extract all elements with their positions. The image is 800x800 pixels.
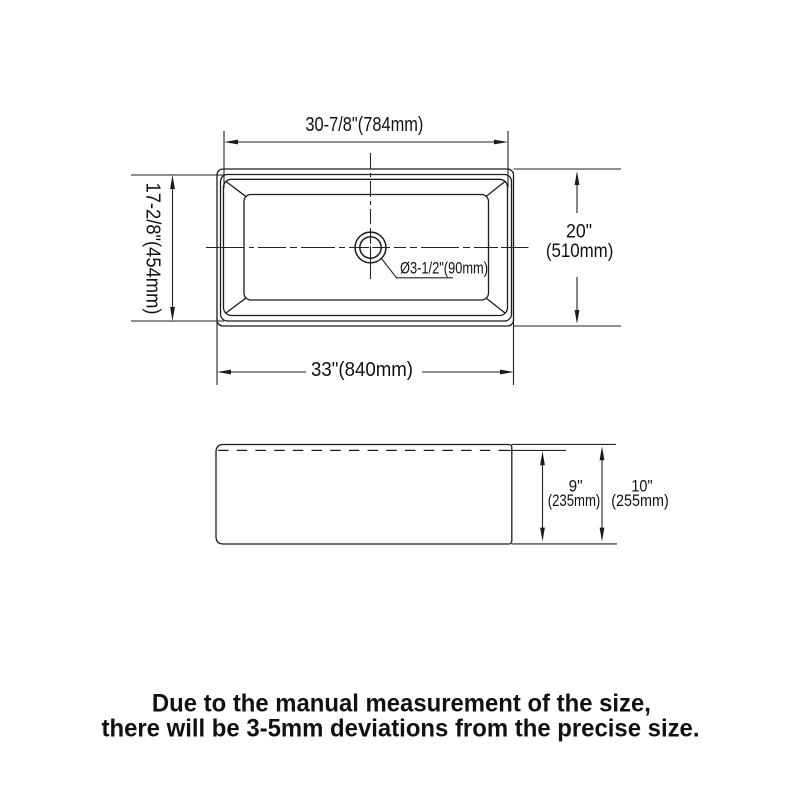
svg-text:Due to the manual measurement: Due to the manual measurement of the siz… [152, 690, 651, 718]
svg-text:(255mm): (255mm) [611, 492, 669, 510]
svg-text:17-2/8"(454mm): 17-2/8"(454mm) [141, 183, 163, 315]
svg-text:there will be 3-5mm deviations: there will be 3-5mm deviations from the … [102, 715, 700, 743]
svg-text:30-7/8"(784mm): 30-7/8"(784mm) [305, 114, 423, 136]
svg-text:(510mm): (510mm) [546, 240, 614, 262]
svg-text:Ø3-1/2"(90mm): Ø3-1/2"(90mm) [400, 260, 488, 278]
svg-text:33"(840mm): 33"(840mm) [311, 359, 413, 381]
svg-text:(235mm): (235mm) [548, 492, 601, 510]
